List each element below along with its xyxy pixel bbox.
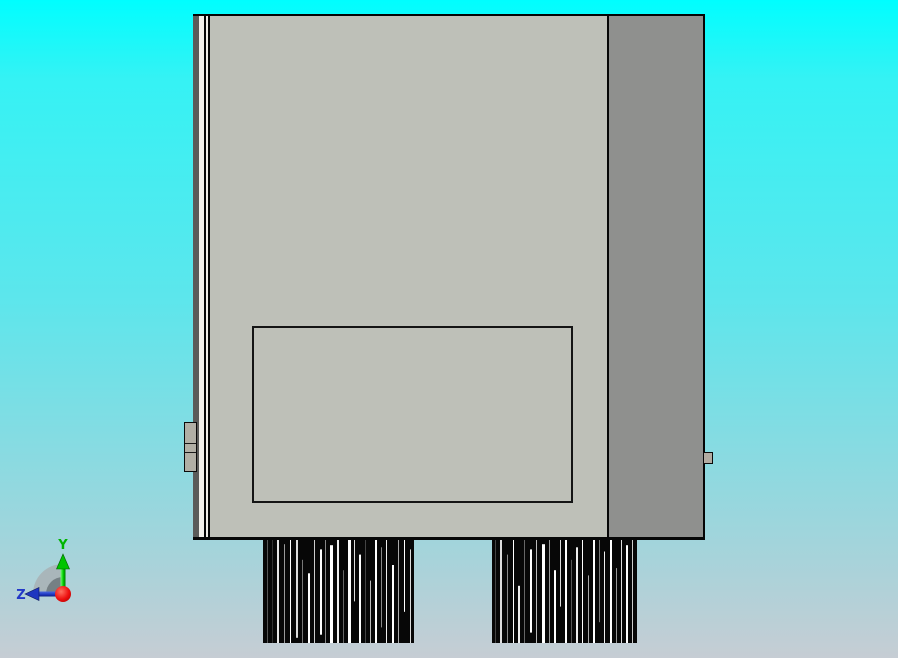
model-body[interactable] [193, 14, 705, 540]
orientation-triad[interactable]: Y Z [8, 528, 100, 632]
axis-y-label: Y [57, 538, 68, 553]
side-face[interactable] [609, 14, 703, 537]
front-panel-outline[interactable] [252, 326, 573, 503]
mount-tab-right[interactable] [703, 452, 713, 464]
model-top-edge [193, 14, 705, 16]
model-bottom-edge [193, 537, 705, 540]
pin-array-right[interactable] [492, 539, 637, 643]
mount-tab-left[interactable] [184, 422, 197, 472]
pin-array-right-graphic [492, 539, 637, 643]
pin-array-left-graphic [263, 539, 414, 643]
tab-seam [185, 443, 196, 444]
tab-seam [185, 452, 196, 453]
viewport-3d[interactable]: Y Z [0, 0, 898, 658]
origin-sphere[interactable] [55, 586, 71, 602]
pin-array-left[interactable] [263, 539, 414, 643]
axis-z-label: Z [16, 588, 25, 603]
